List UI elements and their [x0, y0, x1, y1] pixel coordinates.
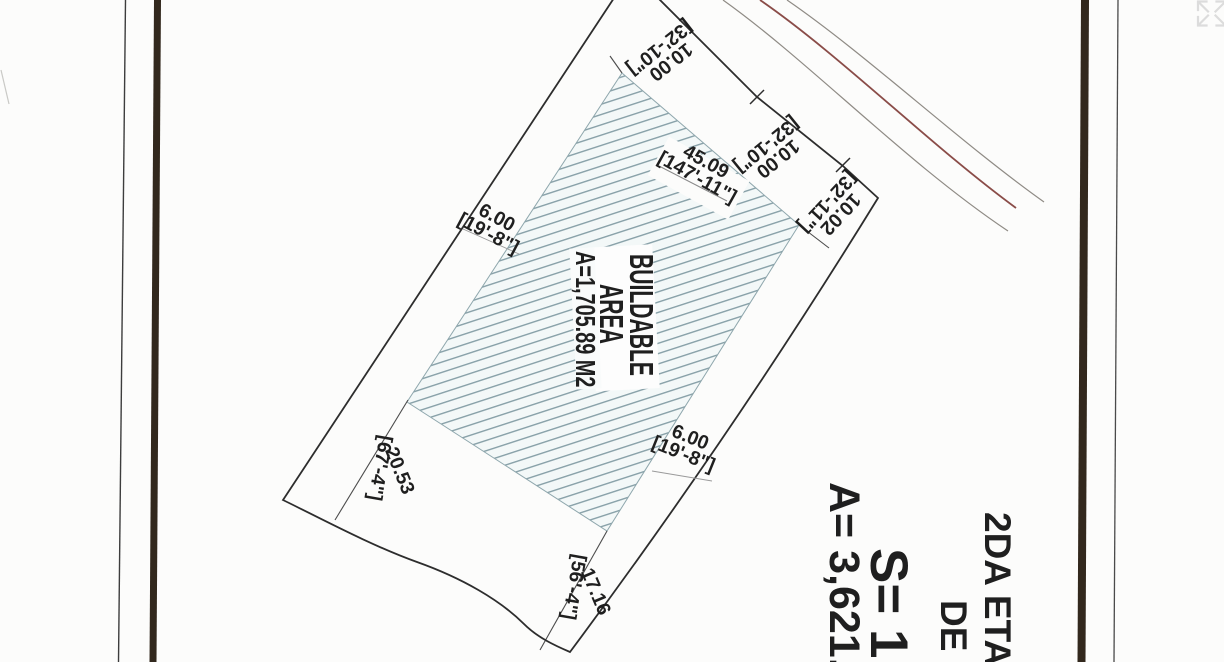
svg-text:A= 3,621.: A= 3,621.: [820, 482, 868, 662]
svg-text:A=1,705.89 M2: A=1,705.89 M2: [569, 251, 600, 387]
svg-text:2DA ETAPA: 2DA ETAPA: [977, 512, 1018, 662]
svg-text:DE L: DE L: [933, 600, 974, 662]
